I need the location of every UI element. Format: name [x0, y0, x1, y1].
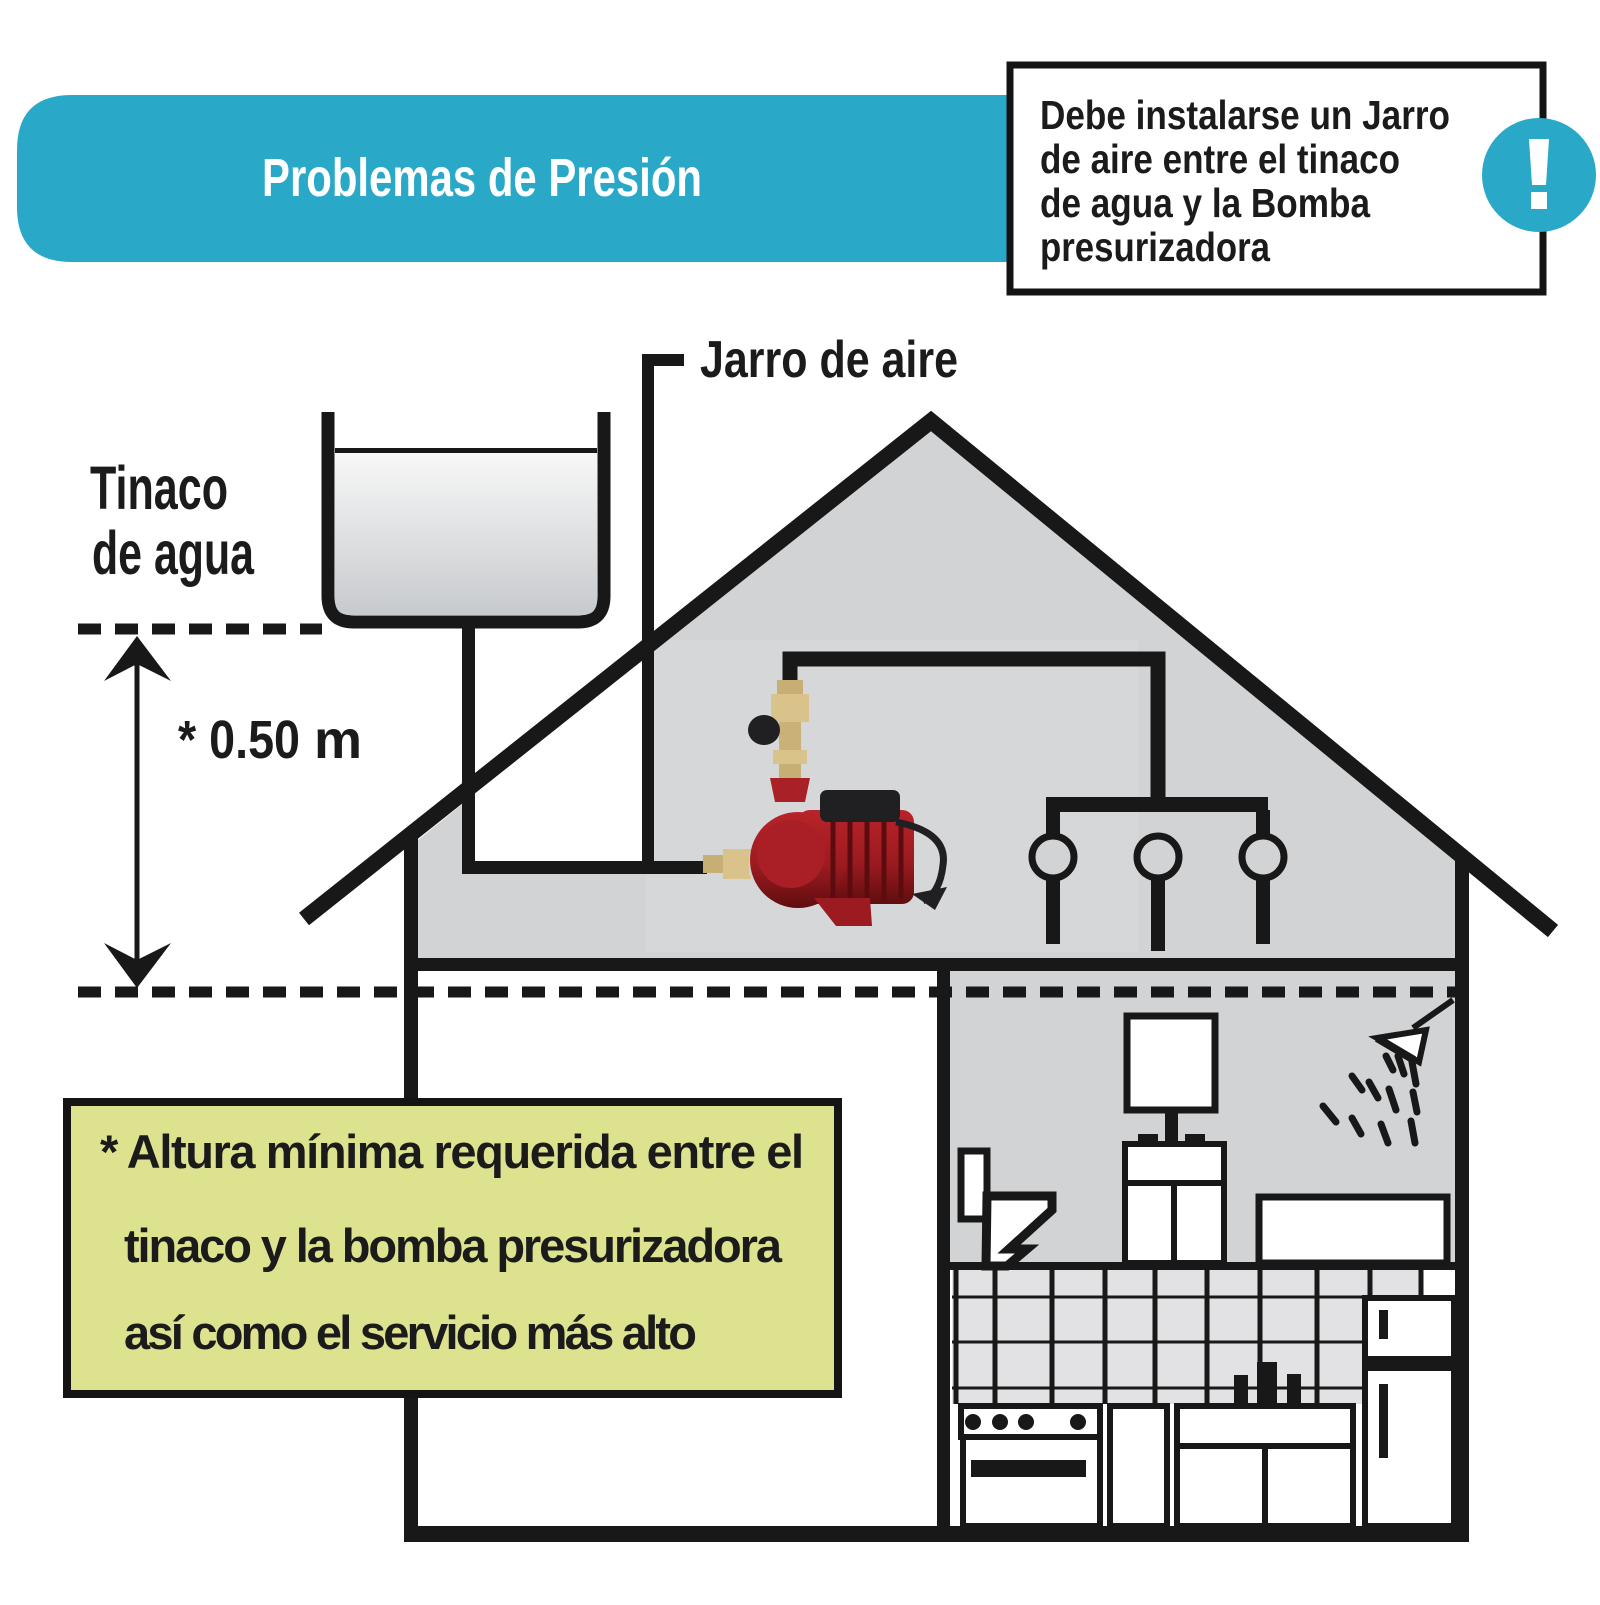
svg-text:de aire entre el tinaco: de aire entre el tinaco — [1040, 136, 1400, 182]
svg-text:de agua: de agua — [92, 519, 255, 587]
svg-text:m: m — [314, 710, 362, 770]
svg-text:Tinaco: Tinaco — [90, 454, 228, 522]
svg-text:Debe instalarse un Jarro: Debe instalarse un Jarro — [1040, 92, 1450, 138]
svg-text:tinaco y la bomba presurizador: tinaco y la bomba presurizadora — [124, 1219, 783, 1272]
svg-text:así como el servicio más alto: así como el servicio más alto — [124, 1306, 697, 1359]
svg-text:presurizadora: presurizadora — [1040, 224, 1271, 270]
svg-text:Jarro de aire: Jarro de aire — [700, 331, 958, 389]
svg-text:de agua y la Bomba: de agua y la Bomba — [1040, 180, 1371, 226]
svg-text:Problemas de Presión: Problemas de Presión — [262, 148, 702, 208]
svg-text:* 0.50: * 0.50 — [178, 710, 300, 770]
svg-text:* Altura mínima requerida entr: * Altura mínima requerida entre el — [100, 1125, 804, 1178]
